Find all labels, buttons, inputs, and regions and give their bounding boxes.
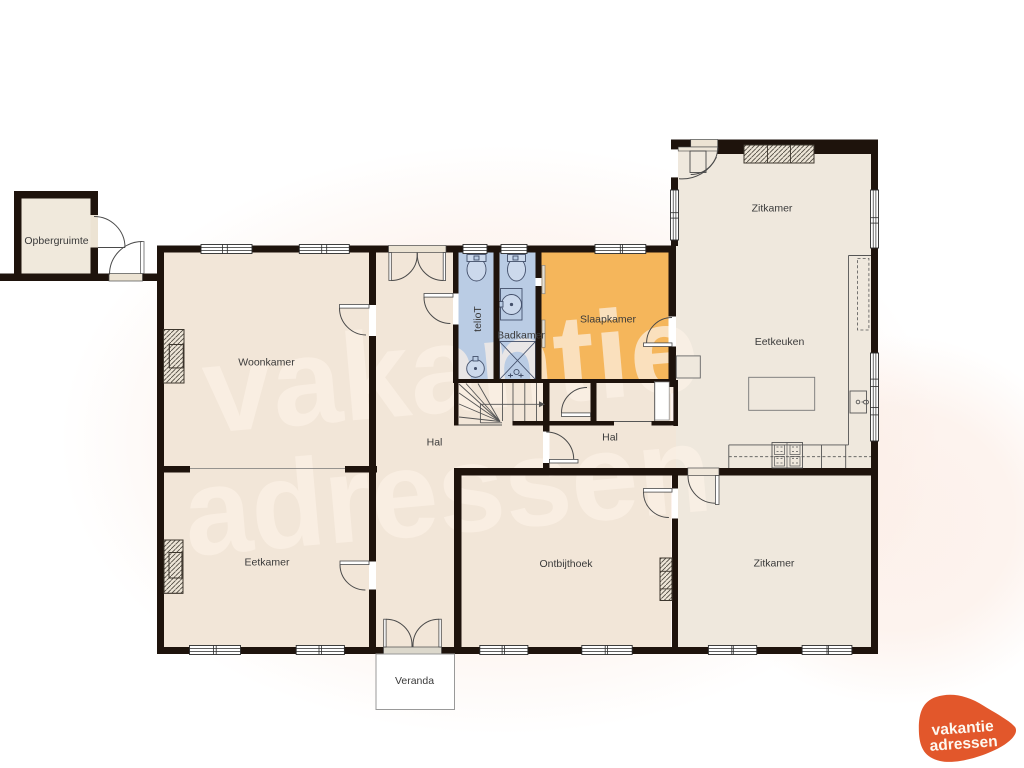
svg-text:telioT: telioT (472, 306, 484, 332)
svg-text:Eetkamer: Eetkamer (245, 557, 290, 569)
svg-text:Slaapkamer: Slaapkamer (580, 314, 637, 326)
svg-text:Zitkamer: Zitkamer (752, 203, 793, 215)
svg-text:Hal: Hal (427, 437, 443, 449)
svg-text:Zitkamer: Zitkamer (754, 558, 795, 570)
svg-text:Ontbijthoek: Ontbijthoek (539, 558, 593, 570)
svg-text:Hal: Hal (602, 432, 618, 444)
svg-text:Veranda: Veranda (395, 675, 434, 687)
svg-text:Woonkamer: Woonkamer (238, 357, 295, 369)
svg-text:Eetkeuken: Eetkeuken (755, 336, 805, 348)
svg-text:Badkamer: Badkamer (497, 330, 545, 342)
svg-text:Opbergruimte: Opbergruimte (24, 235, 88, 247)
